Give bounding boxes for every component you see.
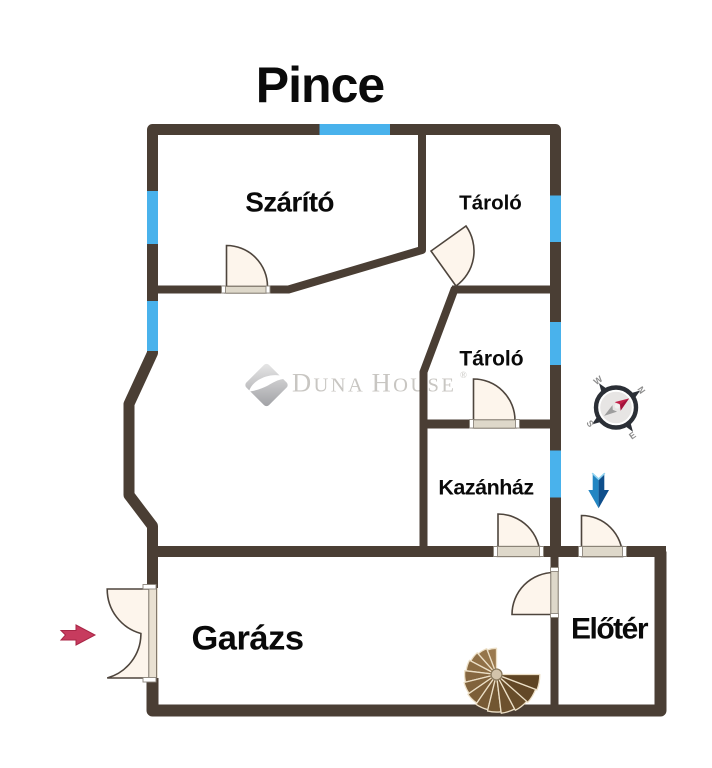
svg-text:®: ® (460, 370, 467, 380)
svg-text:Szárító: Szárító (245, 187, 334, 218)
svg-text:Pince: Pince (256, 57, 385, 113)
svg-text:Tároló: Tároló (459, 192, 522, 215)
svg-text:Garázs: Garázs (191, 620, 303, 658)
svg-text:Előtér: Előtér (571, 613, 649, 646)
svg-text:Kazánház: Kazánház (438, 476, 533, 500)
svg-text:Tároló: Tároló (459, 348, 523, 371)
